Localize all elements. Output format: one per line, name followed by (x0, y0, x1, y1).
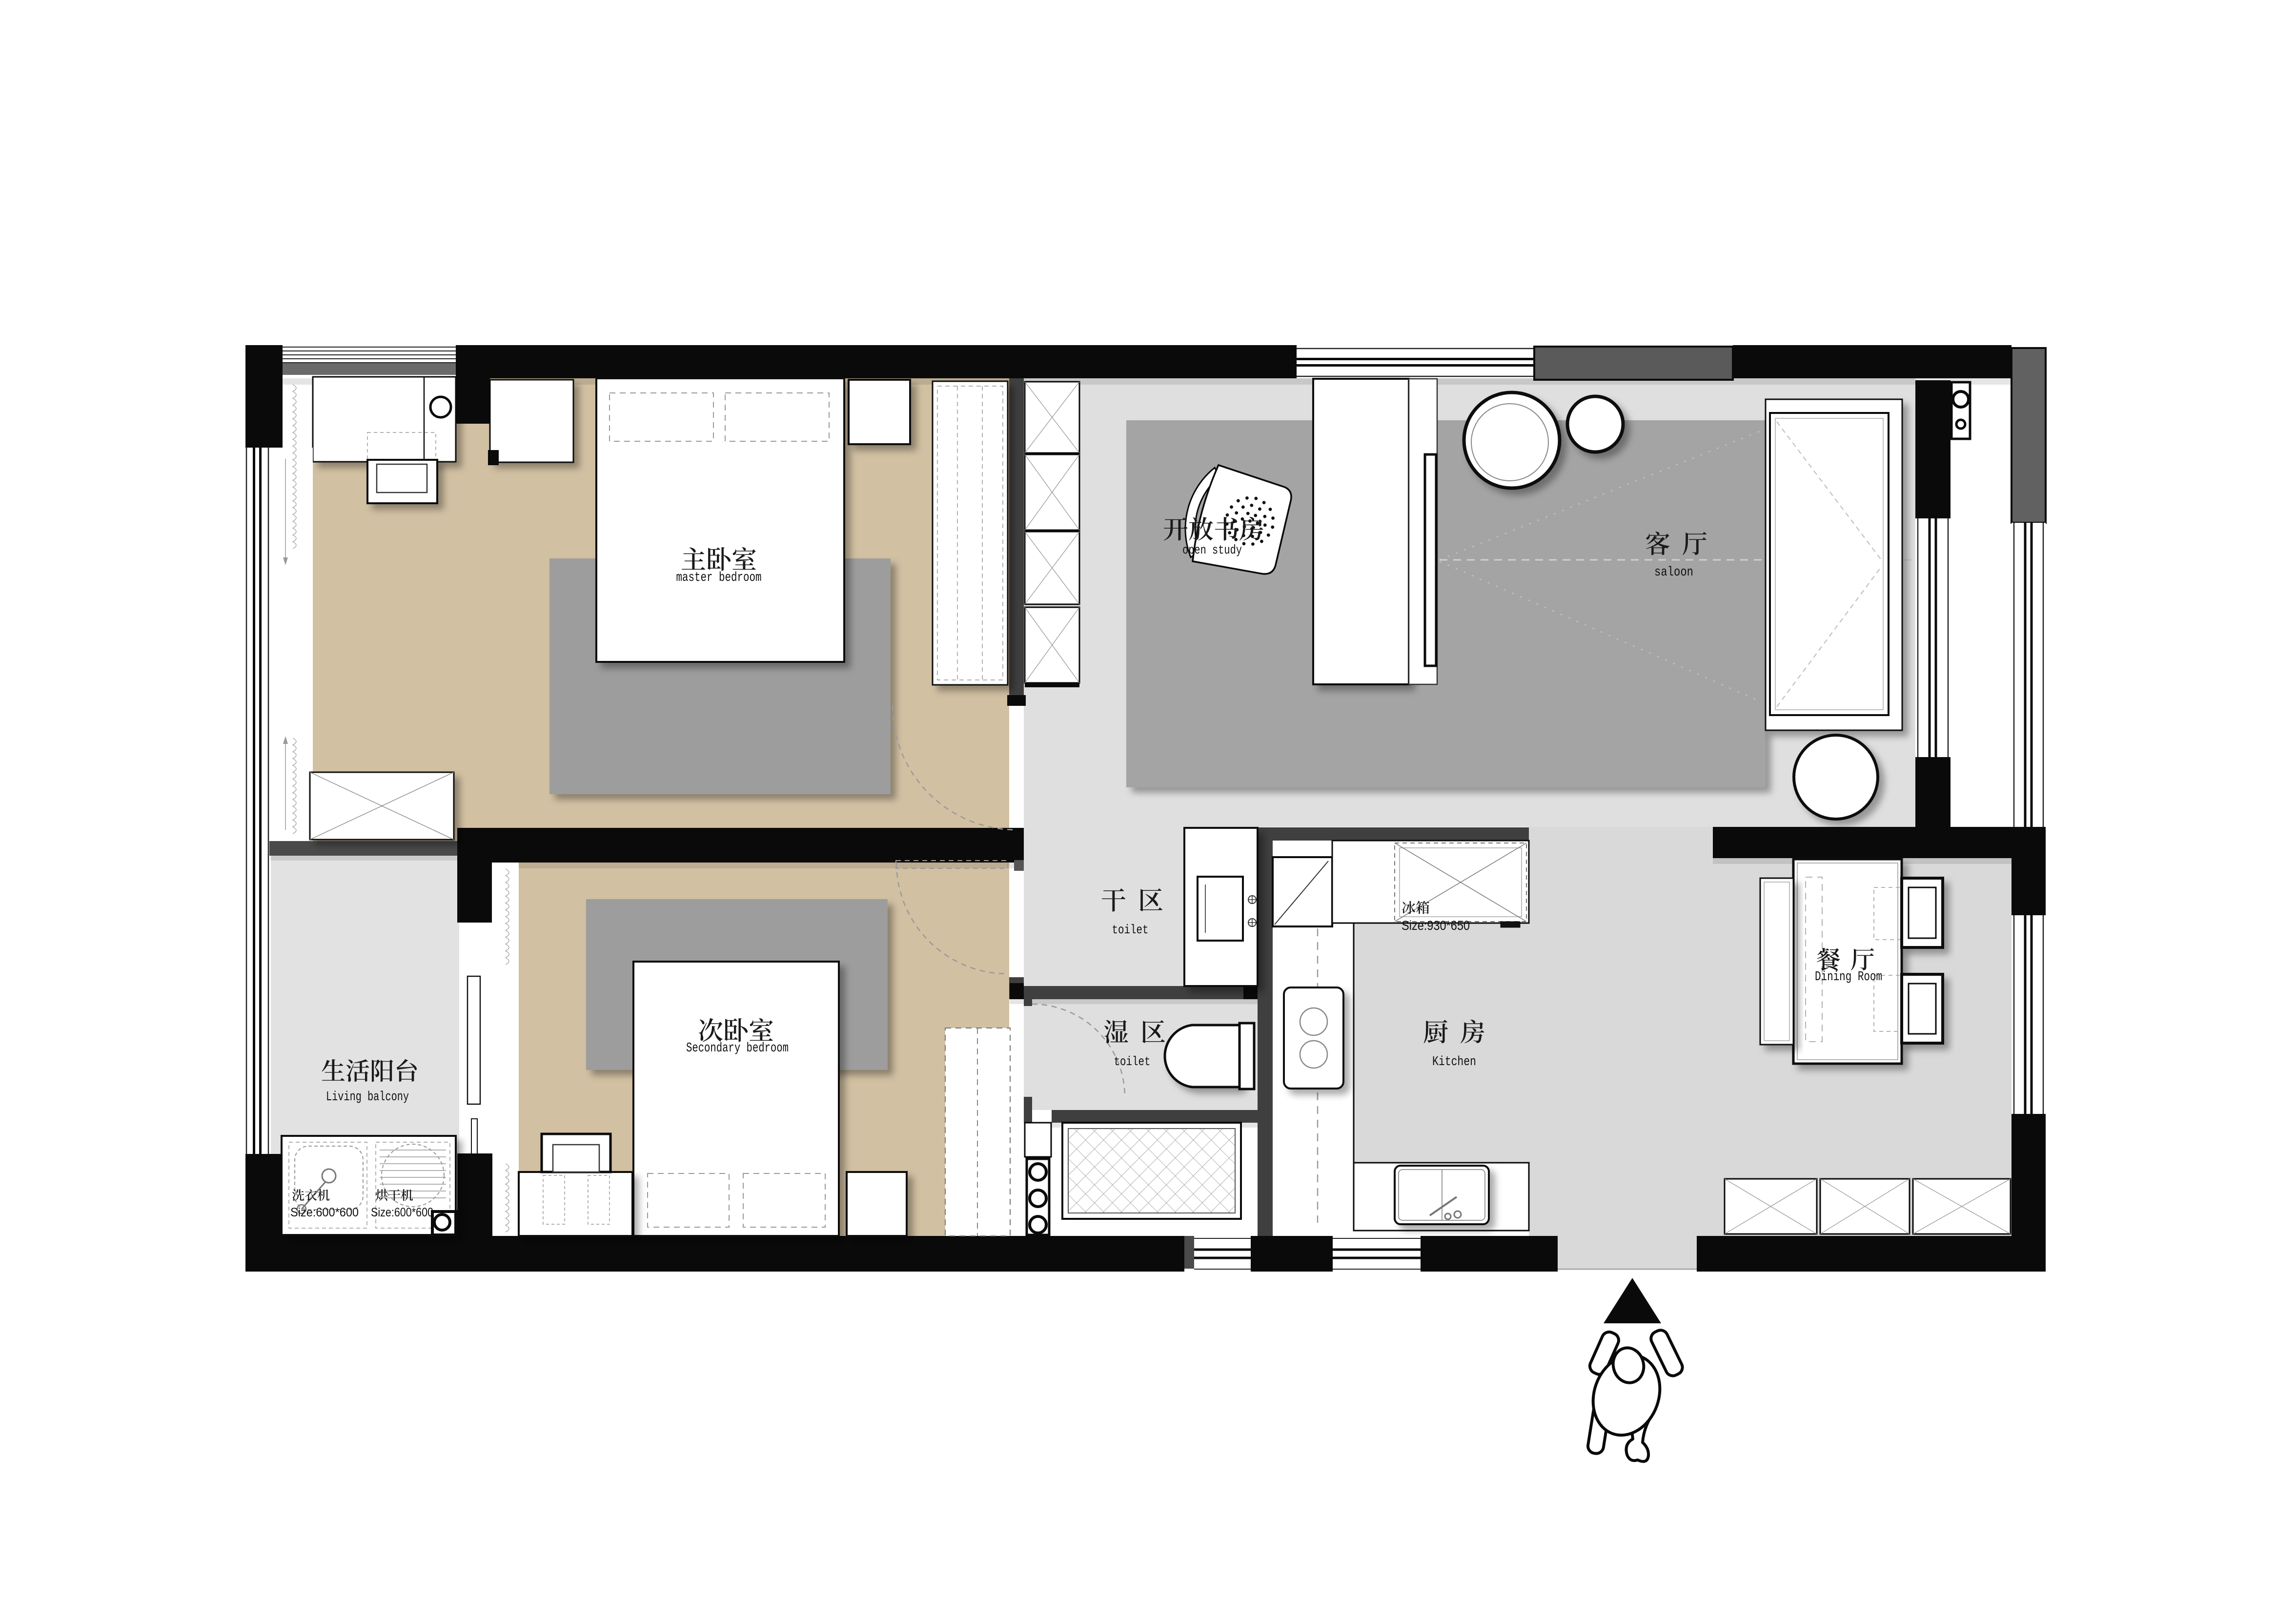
svg-text:Living balcony: Living balcony (326, 1090, 409, 1105)
svg-text:toilet: toilet (1114, 1054, 1151, 1069)
svg-text:open study: open study (1182, 543, 1242, 557)
svg-text:Secondary bedroom: Secondary bedroom (686, 1041, 789, 1056)
svg-text:saloon: saloon (1654, 565, 1693, 580)
svg-text:Kitchen: Kitchen (1432, 1055, 1476, 1069)
svg-text:Size:600*600: Size:600*600 (371, 1206, 433, 1219)
svg-text:Dining Room: Dining Room (1815, 970, 1882, 985)
svg-text:Size:600*600: Size:600*600 (290, 1206, 359, 1219)
svg-text:master bedroom: master bedroom (676, 571, 762, 585)
svg-text:toilet: toilet (1112, 923, 1149, 937)
svg-text:Size:930*650: Size:930*650 (1402, 918, 1470, 933)
